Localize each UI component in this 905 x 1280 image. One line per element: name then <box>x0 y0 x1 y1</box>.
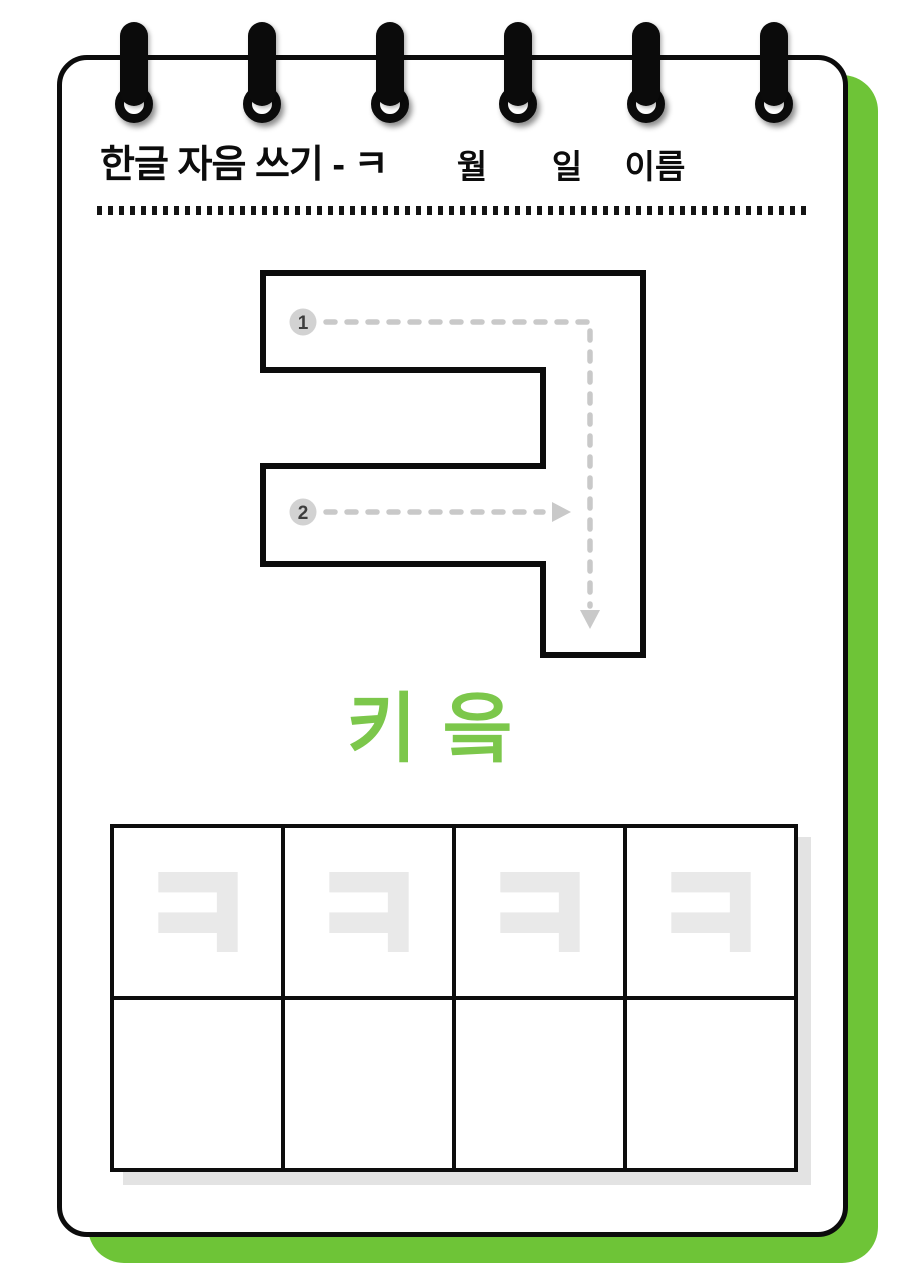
kieuk-outline-shape <box>263 273 643 655</box>
trace-letter-kieuk-icon <box>671 872 751 952</box>
worksheet-stage: 한글 자음 쓰기 - ㅋ 월 일 이름 1 2 키읔 <box>0 0 905 1280</box>
letter-name-text: 키읔 <box>47 692 838 768</box>
practice-cell-trace <box>285 828 452 996</box>
trace-letter-kieuk-icon <box>329 872 409 952</box>
stroke1-number: 1 <box>298 313 309 334</box>
ring-clip-icon <box>120 22 148 106</box>
ring-clip-icon <box>376 22 404 106</box>
dotted-separator <box>97 206 807 215</box>
practice-cell-trace <box>456 828 623 996</box>
practice-cell-empty <box>456 1000 623 1168</box>
ring-clip-icon <box>248 22 276 106</box>
ring-clip-icon <box>760 22 788 106</box>
trace-letter-kieuk-icon <box>158 872 238 952</box>
stroke2-number: 2 <box>298 503 309 524</box>
month-label: 월 <box>457 150 487 184</box>
ring-clip-icon <box>504 22 532 106</box>
practice-cell-empty <box>285 1000 452 1168</box>
name-label: 이름 <box>625 150 686 184</box>
practice-cell-trace <box>627 828 794 996</box>
ring-clip-icon <box>632 22 660 106</box>
practice-cell-empty <box>627 1000 794 1168</box>
trace-letter-kieuk-icon <box>500 872 580 952</box>
practice-grid <box>110 824 798 1172</box>
practice-cell-trace <box>114 828 281 996</box>
letter-stroke-diagram: 1 2 <box>240 260 660 680</box>
day-label: 일 <box>552 150 582 184</box>
page-title: 한글 자음 쓰기 - ㅋ <box>100 146 388 184</box>
practice-cell-empty <box>114 1000 281 1168</box>
